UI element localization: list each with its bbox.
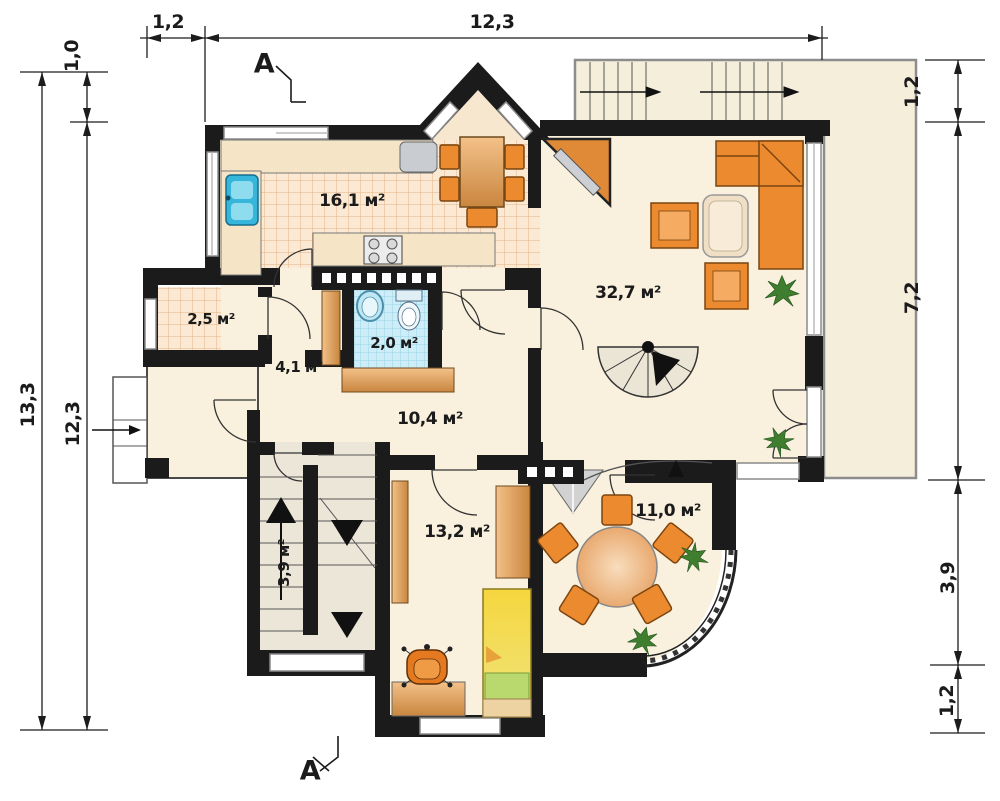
bedroom-area-label: 13,2 м² <box>424 522 490 542</box>
bed <box>483 589 531 717</box>
stairs-window <box>270 654 364 671</box>
bathroom-area-label: 2,0 м² <box>370 334 418 352</box>
stove <box>364 236 402 264</box>
dim-right-2: 7,2 <box>901 282 923 314</box>
kitchen-area-label: 16,1 м² <box>319 191 385 211</box>
dim-right-3: 3,9 <box>937 562 959 594</box>
dim-top-1: 1,2 <box>152 11 184 33</box>
section-mark-top: A <box>254 49 274 80</box>
bedroom-window <box>420 718 500 734</box>
wardrobe-left <box>392 481 408 603</box>
hall-cabinet-low <box>342 368 454 392</box>
living-window-bottom <box>737 463 799 479</box>
kitchen-bar-wall <box>312 266 442 290</box>
dim-right-1: 1,2 <box>901 76 923 108</box>
dim-right-4: 1,2 <box>936 685 958 717</box>
dim-left-1: 1,0 <box>61 40 83 72</box>
dim-left-3: 12,3 <box>62 402 84 447</box>
floor-plan-drawing <box>0 0 1000 801</box>
floor-plan: 16,1 м² 2,5 м² 2,0 м² 4,1 м² 10,4 м² 32,… <box>0 0 1000 801</box>
corridor-area-label: 10,4 м² <box>397 409 463 429</box>
kitchen-island <box>313 233 495 266</box>
dim-left-2: 13,3 <box>17 383 39 428</box>
hall-area-label: 4,1 м² <box>275 358 323 376</box>
toilet <box>396 290 422 330</box>
entry-steps <box>92 377 147 483</box>
wardrobe-right <box>496 486 530 578</box>
pantry-area-label: 2,5 м² <box>187 310 235 328</box>
fridge <box>400 142 437 172</box>
living-area-label: 32,7 м² <box>595 283 661 303</box>
dim-top-2: 12,3 <box>470 11 515 33</box>
terrace-door-opening <box>807 387 821 457</box>
dining-area-label: 11,0 м² <box>635 501 701 521</box>
section-mark-bottom: A <box>300 756 320 787</box>
pantry-window <box>145 299 156 349</box>
kitchen-table <box>460 137 504 207</box>
hall-cabinet-tall <box>322 291 340 365</box>
stairs-area-label: 3,9 м² <box>275 539 293 587</box>
